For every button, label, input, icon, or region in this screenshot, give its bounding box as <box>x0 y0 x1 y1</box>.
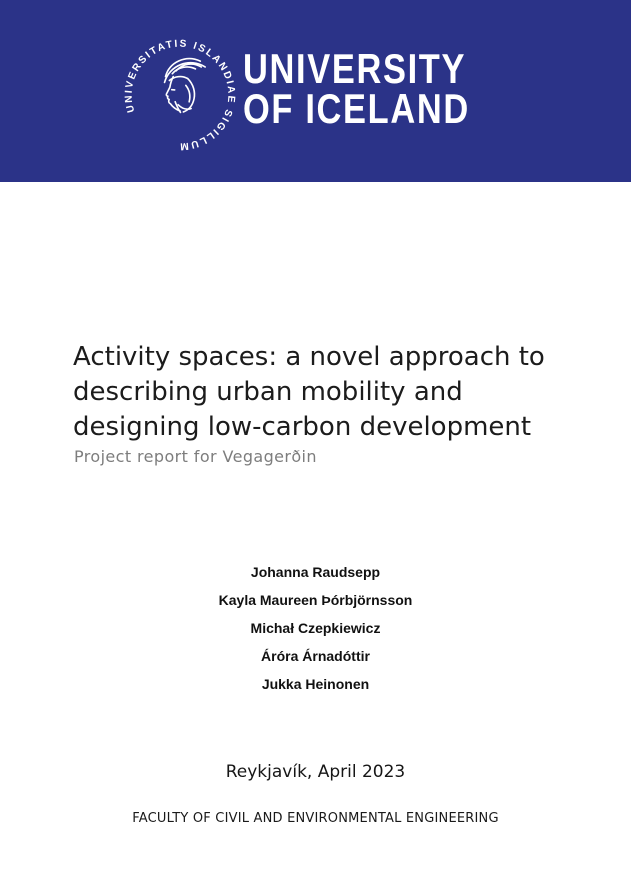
author-name: Jukka Heinonen <box>0 670 631 698</box>
title-line: Activity spaces: a novel approach to <box>73 340 573 375</box>
author-name: Michał Czepkiewicz <box>0 614 631 642</box>
author-name: Kayla Maureen Þórbjörnsson <box>0 586 631 614</box>
athena-head-icon <box>165 59 206 113</box>
wordmark-line-1: UNIVERSITY <box>243 49 470 89</box>
report-title: Activity spaces: a novel approach to des… <box>73 340 573 445</box>
title-line: designing low-carbon development <box>73 410 573 445</box>
author-name: Áróra Árnadóttir <box>0 642 631 670</box>
university-seal-icon: UNIVERSITATIS ISLANDIAE SIGILLUM <box>122 37 238 153</box>
svg-text:UNIVERSITATIS ISLANDIAE SIGILL: UNIVERSITATIS ISLANDIAE SIGILLUM <box>122 37 238 153</box>
seal-ring-text: UNIVERSITATIS ISLANDIAE SIGILLUM <box>122 37 238 153</box>
place-and-date: Reykjavík, April 2023 <box>0 762 631 782</box>
report-subtitle: Project report for Vegagerðin <box>74 447 317 466</box>
faculty-name: FACULTY OF CIVIL AND ENVIRONMENTAL ENGIN… <box>0 811 631 826</box>
wordmark-line-2: OF ICELAND <box>243 89 470 129</box>
title-line: describing urban mobility and <box>73 375 573 410</box>
university-wordmark: UNIVERSITY OF ICELAND <box>243 49 470 129</box>
author-name: Johanna Raudsepp <box>0 558 631 586</box>
university-banner: UNIVERSITATIS ISLANDIAE SIGILLUM UNIVERS… <box>0 0 631 182</box>
author-list: Johanna Raudsepp Kayla Maureen Þórbjörns… <box>0 558 631 698</box>
